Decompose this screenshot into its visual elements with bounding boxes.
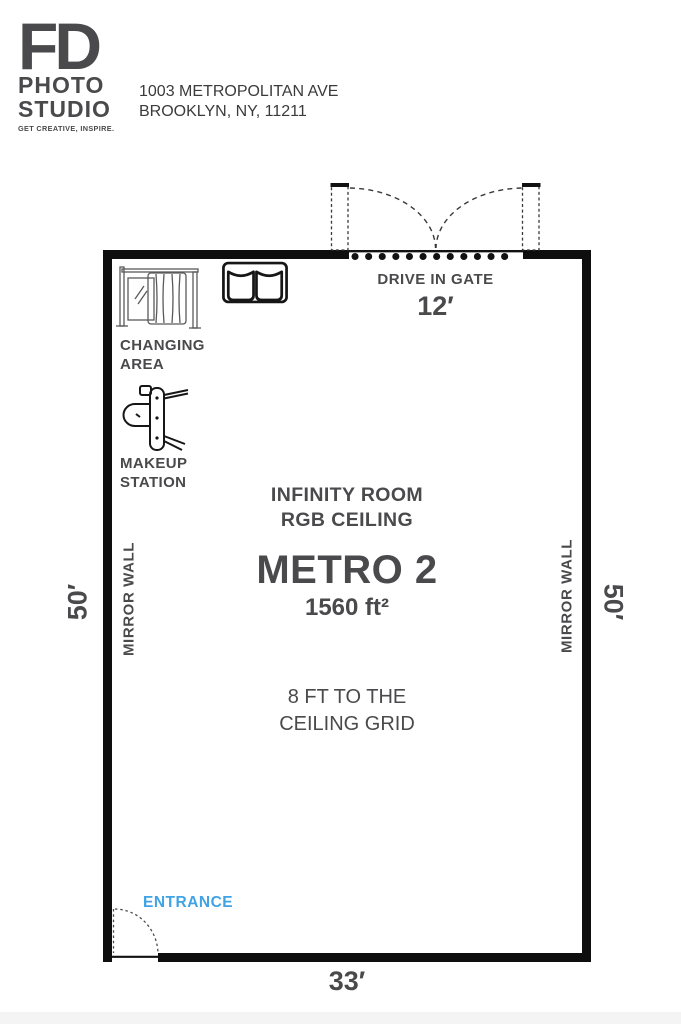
room-feature-line2: RGB CEILING: [103, 508, 591, 533]
room-area: 1560 ft²: [103, 594, 591, 622]
makeup-station-line1: MAKEUP: [120, 455, 187, 474]
logo-tagline: GET CREATIVE, INSPIRE.: [18, 124, 114, 133]
left-wall-dimension: 50′: [63, 584, 94, 621]
studio-address: 1003 METROPOLITAN AVE BROOKLYN, NY, 1121…: [139, 82, 338, 121]
right-wall-dimension: 50′: [598, 584, 629, 621]
sofa-icon: [221, 260, 289, 305]
ceiling-note-line1: 8 FT TO THE: [103, 684, 591, 711]
room-feature-line1: INFINITY ROOM: [103, 483, 591, 508]
floorplan-page: FD PHOTO STUDIO GET CREATIVE, INSPIRE. 1…: [0, 0, 681, 1024]
drive-in-gate-label: DRIVE IN GATE: [348, 271, 523, 288]
fd-photo-studio-logo: FD PHOTO STUDIO GET CREATIVE, INSPIRE.: [18, 18, 114, 133]
address-line2: BROOKLYN, NY, 11211: [139, 102, 338, 122]
gate-door-left-panel-icon: [332, 186, 349, 250]
gate-right-swing-arc-icon: [436, 188, 522, 248]
gate-opening: [349, 250, 523, 259]
logo-studio-text: STUDIO: [18, 98, 114, 122]
mirror-wall-right-label: MIRROR WALL: [559, 539, 576, 653]
changing-area-icon: [114, 258, 204, 334]
gate-width-dimension: 12′: [348, 291, 523, 322]
changing-area-line2: AREA: [120, 356, 205, 375]
gate-left-swing-arc-icon: [350, 188, 436, 248]
page-bottom-band: [0, 1012, 681, 1024]
entrance-label: ENTRANCE: [143, 894, 233, 912]
entrance-opening: [112, 953, 158, 962]
mirror-wall-left-label: MIRROR WALL: [121, 542, 138, 656]
gate-door-right-panel-icon: [523, 186, 540, 250]
logo-photo-text: PHOTO: [18, 74, 114, 98]
ceiling-note-line2: CEILING GRID: [103, 711, 591, 738]
bottom-wall-dimension: 33′: [103, 966, 591, 997]
room-name: METRO 2: [103, 548, 591, 593]
logo-fd-text: FD: [18, 18, 114, 74]
makeup-station-icon: [112, 384, 190, 454]
room-feature-label: INFINITY ROOM RGB CEILING: [103, 483, 591, 533]
ceiling-height-note: 8 FT TO THE CEILING GRID: [103, 684, 591, 738]
address-line1: 1003 METROPOLITAN AVE: [139, 82, 338, 102]
changing-area-line1: CHANGING: [120, 337, 205, 356]
changing-area-label: CHANGING AREA: [120, 337, 205, 374]
